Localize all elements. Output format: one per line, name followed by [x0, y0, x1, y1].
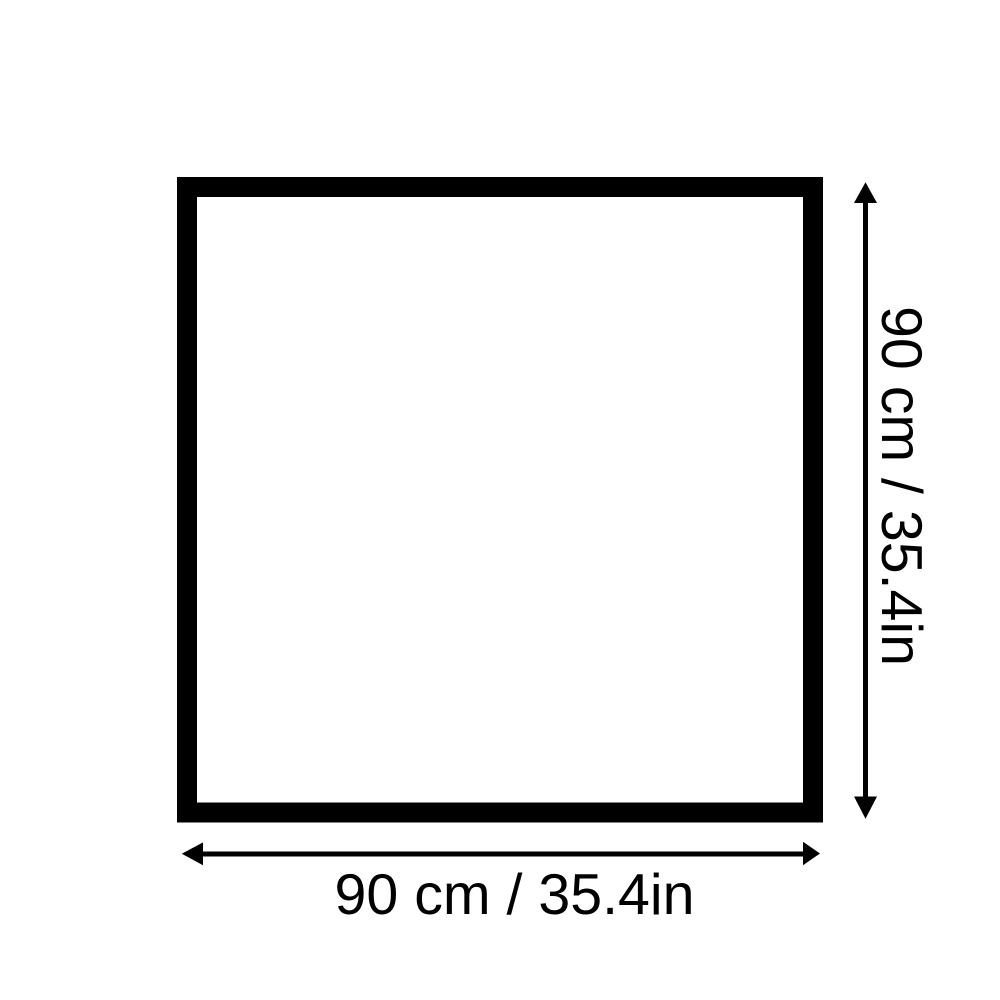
svg-text:90 cm / 35.4in: 90 cm / 35.4in: [869, 306, 933, 666]
svg-text:90 cm / 35.4in: 90 cm / 35.4in: [335, 863, 695, 927]
